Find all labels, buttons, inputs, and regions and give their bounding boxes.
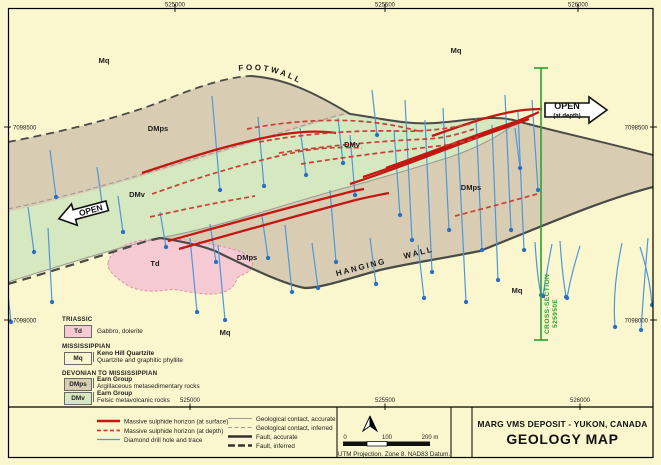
svg-text:DMps: DMps bbox=[461, 183, 481, 192]
mq-bracket bbox=[93, 352, 94, 362]
svg-text:Geological contact, accurate: Geological contact, accurate bbox=[256, 416, 336, 423]
dmps-bracket bbox=[93, 378, 94, 388]
dmv-desc: Felsic metavolcanic rocks bbox=[97, 397, 170, 404]
dmv-name: Earn Group bbox=[97, 390, 132, 397]
svg-text:0: 0 bbox=[343, 435, 347, 441]
svg-text:526000: 526000 bbox=[570, 398, 591, 404]
svg-text:Massive sulphide horizon (at d: Massive sulphide horizon (at depth) bbox=[124, 428, 223, 435]
era-mississippian: MISSISSIPPIAN bbox=[62, 343, 110, 350]
dmps-swatch: DMps bbox=[64, 378, 92, 391]
svg-text:Fault, accurate: Fault, accurate bbox=[256, 434, 298, 441]
north-arrow-icon bbox=[363, 416, 377, 431]
mq-swatch: Mq bbox=[64, 352, 92, 365]
td-name: Gabbro, dolerite bbox=[97, 328, 143, 335]
svg-text:Geological contact, inferred: Geological contact, inferred bbox=[256, 425, 333, 432]
geology-map-page: CROSS-SECTION 525950E FOOTWALL HANGING W… bbox=[0, 0, 661, 465]
dmps-desc: Argillaceous metasedimentary rocks bbox=[97, 383, 200, 390]
svg-text:Diamond drill hole and trace: Diamond drill hole and trace bbox=[124, 437, 203, 444]
svg-text:DMps: DMps bbox=[237, 253, 257, 262]
svg-text:(at depth): (at depth) bbox=[553, 114, 580, 120]
svg-text:526000: 526000 bbox=[568, 3, 589, 9]
svg-text:7098000: 7098000 bbox=[13, 319, 37, 325]
line-legend: Massive sulphide horizon (at surface) Ma… bbox=[97, 416, 336, 450]
svg-text:7098000: 7098000 bbox=[625, 319, 649, 325]
svg-text:525000: 525000 bbox=[165, 3, 186, 9]
era-triassic: TRIASSIC bbox=[62, 316, 92, 323]
svg-text:525500: 525500 bbox=[375, 3, 396, 9]
svg-text:100: 100 bbox=[382, 435, 393, 441]
map-title: GEOLOGY MAP bbox=[506, 431, 618, 447]
svg-text:Mq: Mq bbox=[512, 286, 523, 295]
svg-text:DMps: DMps bbox=[148, 124, 168, 133]
svg-text:Td: Td bbox=[150, 259, 160, 268]
svg-text:Mq: Mq bbox=[451, 46, 462, 55]
svg-text:525000: 525000 bbox=[180, 398, 201, 404]
svg-text:Massive sulphide horizon (at s: Massive sulphide horizon (at surface) bbox=[124, 419, 228, 426]
svg-text:Mq: Mq bbox=[99, 56, 110, 65]
svg-text:200 m: 200 m bbox=[422, 435, 439, 441]
td-swatch: Td bbox=[64, 325, 92, 338]
scale-bar: 0 100 200 m UTM Projection. Zone 8. NAD8… bbox=[338, 435, 451, 458]
svg-text:DMv: DMv bbox=[344, 140, 361, 149]
svg-text:525500: 525500 bbox=[375, 398, 396, 404]
dmps-name: Earn Group bbox=[97, 376, 132, 383]
mq-name: Keno Hill Quartzite bbox=[97, 350, 154, 357]
mq-desc: Quartzite and graphitic phyllite bbox=[97, 357, 183, 364]
svg-text:UTM Projection. Zone 8. NAD83: UTM Projection. Zone 8. NAD83 Datum. bbox=[338, 451, 451, 458]
title-block: MARG VMS DEPOSIT - YUKON, CANADA GEOLOGY… bbox=[473, 408, 652, 457]
dmv-swatch: DMv bbox=[64, 392, 92, 405]
svg-text:Mq: Mq bbox=[220, 328, 231, 337]
map-subtitle: MARG VMS DEPOSIT - YUKON, CANADA bbox=[477, 419, 647, 429]
svg-text:7098500: 7098500 bbox=[13, 126, 37, 132]
svg-text:Fault, inferred: Fault, inferred bbox=[256, 443, 295, 450]
dmv-bracket bbox=[93, 392, 94, 402]
svg-text:DMv: DMv bbox=[129, 190, 146, 199]
svg-text:7098500: 7098500 bbox=[625, 126, 649, 132]
svg-text:OPEN: OPEN bbox=[554, 101, 580, 111]
